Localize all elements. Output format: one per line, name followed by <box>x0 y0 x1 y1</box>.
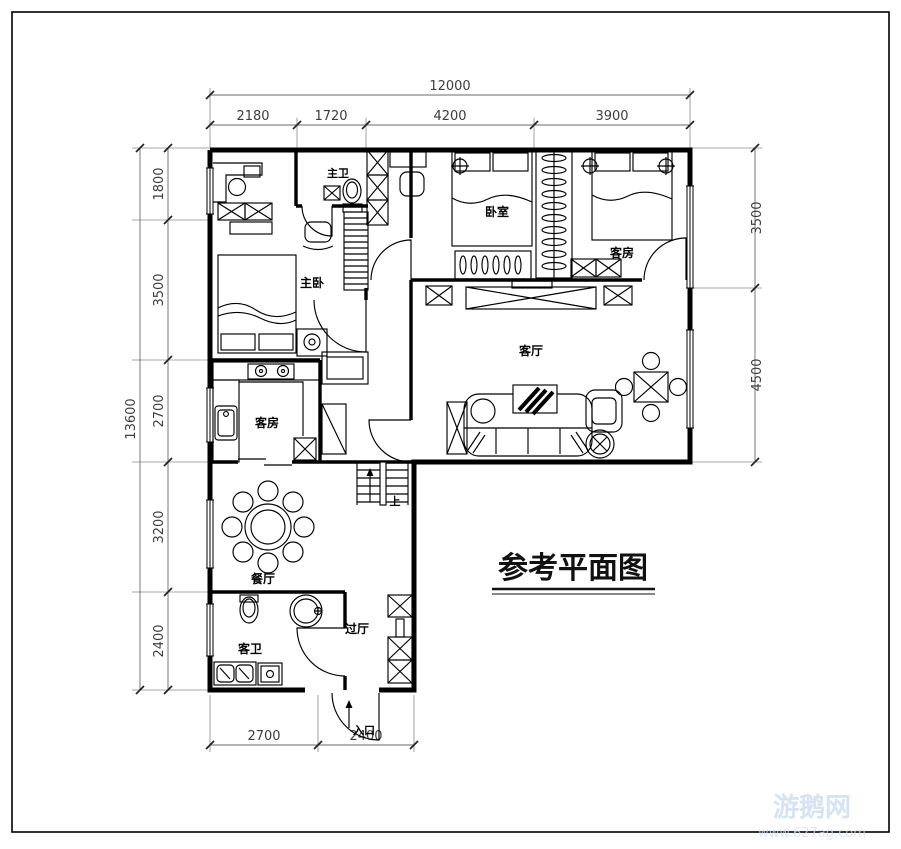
washer <box>258 663 282 685</box>
dim-left-1: 1800 <box>152 167 167 200</box>
label-guest-room-top: 客房 <box>609 245 634 260</box>
drawing-title: 参考平面图 <box>492 551 655 594</box>
desk-and-chair <box>213 163 262 202</box>
walls <box>210 150 690 690</box>
rug <box>513 385 557 414</box>
inner-walls <box>210 150 690 690</box>
master-bed <box>218 255 296 353</box>
kitchen-sliding-door <box>238 459 292 465</box>
dim-left-2: 3500 <box>152 273 167 306</box>
dim-top-4: 3900 <box>595 109 628 124</box>
label-entrance: 入口 <box>353 724 375 737</box>
guest-bath-door <box>297 628 345 676</box>
kitchen-cabinet-hatch <box>294 438 316 460</box>
master-bath-door <box>302 206 332 236</box>
floorplan-canvas: 12000 2180 1720 4200 3900 13600 1800 350… <box>0 0 901 849</box>
fridge <box>322 404 346 454</box>
dining-table-four <box>616 353 687 422</box>
toilet-guest <box>240 595 258 623</box>
armchair <box>586 390 622 432</box>
dim-left-3: 2700 <box>152 394 167 427</box>
title-text: 参考平面图 <box>498 551 648 586</box>
label-dining-room: 餐厅 <box>251 571 275 586</box>
outer-walls <box>210 150 690 690</box>
round-dining-table <box>222 481 314 573</box>
dim-right-1: 3500 <box>750 201 765 234</box>
master-bedroom-door <box>314 300 366 352</box>
label-stairs-up: 上 <box>390 494 401 508</box>
corridor-living-door <box>369 420 411 462</box>
label-guest-room-mid: 客房 <box>254 415 279 430</box>
kitchen-sink <box>215 406 237 440</box>
corridor-cabinet <box>322 352 368 384</box>
hanging-closet <box>536 150 572 278</box>
floorplan-page: 12000 2180 1720 4200 3900 13600 1800 350… <box>0 0 901 849</box>
dim-top-3: 4200 <box>433 109 466 124</box>
dim-top-total: 12000 <box>429 79 470 94</box>
entrance-arrow <box>346 700 353 728</box>
bedroom-bed <box>452 150 532 246</box>
label-hallway: 过厅 <box>345 621 369 636</box>
stove <box>248 364 294 379</box>
bathtub-round <box>290 595 322 627</box>
rug-hatch <box>218 203 272 234</box>
tv-cabinet <box>426 281 632 309</box>
dim-left-4: 3200 <box>152 510 167 543</box>
watermark-site: 游鹅网 <box>773 792 851 823</box>
laundry-sink <box>214 662 256 685</box>
dim-top-1: 2180 <box>236 109 269 124</box>
label-guest-bath: 客卫 <box>237 641 262 656</box>
label-bedroom: 卧室 <box>485 204 509 219</box>
room-labels: 主卫 卧室 客房 主卧 客厅 客房 餐厅 客卫 过厅 上 入口 <box>237 166 634 737</box>
kitchen-counter <box>213 362 320 462</box>
watermark: 游鹅网 www.627ag.com <box>758 792 866 841</box>
radiator-cabinet <box>455 251 531 279</box>
closet-cabinet-hatch <box>571 259 621 277</box>
side-table <box>586 430 614 458</box>
hallway-cabinets <box>388 595 412 683</box>
label-master-bath: 主卫 <box>327 166 349 180</box>
image-border <box>12 12 889 832</box>
dim-top-2: 1720 <box>314 109 347 124</box>
dim-left-total: 13600 <box>124 398 139 439</box>
wardrobe-slats <box>344 212 368 290</box>
dim-right-2: 4500 <box>750 358 765 391</box>
dimension-lines: 12000 2180 1720 4200 3900 13600 1800 350… <box>124 79 765 752</box>
label-living-room: 客厅 <box>518 343 543 358</box>
guest-room-door <box>644 238 686 280</box>
dim-bottom-1: 2700 <box>247 729 280 744</box>
storage-column <box>367 150 426 225</box>
watermark-url: www.627ag.com <box>758 826 866 841</box>
bedroom-door <box>371 240 411 280</box>
dim-left-5: 2400 <box>152 624 167 657</box>
label-master-bedroom: 主卧 <box>300 275 324 290</box>
